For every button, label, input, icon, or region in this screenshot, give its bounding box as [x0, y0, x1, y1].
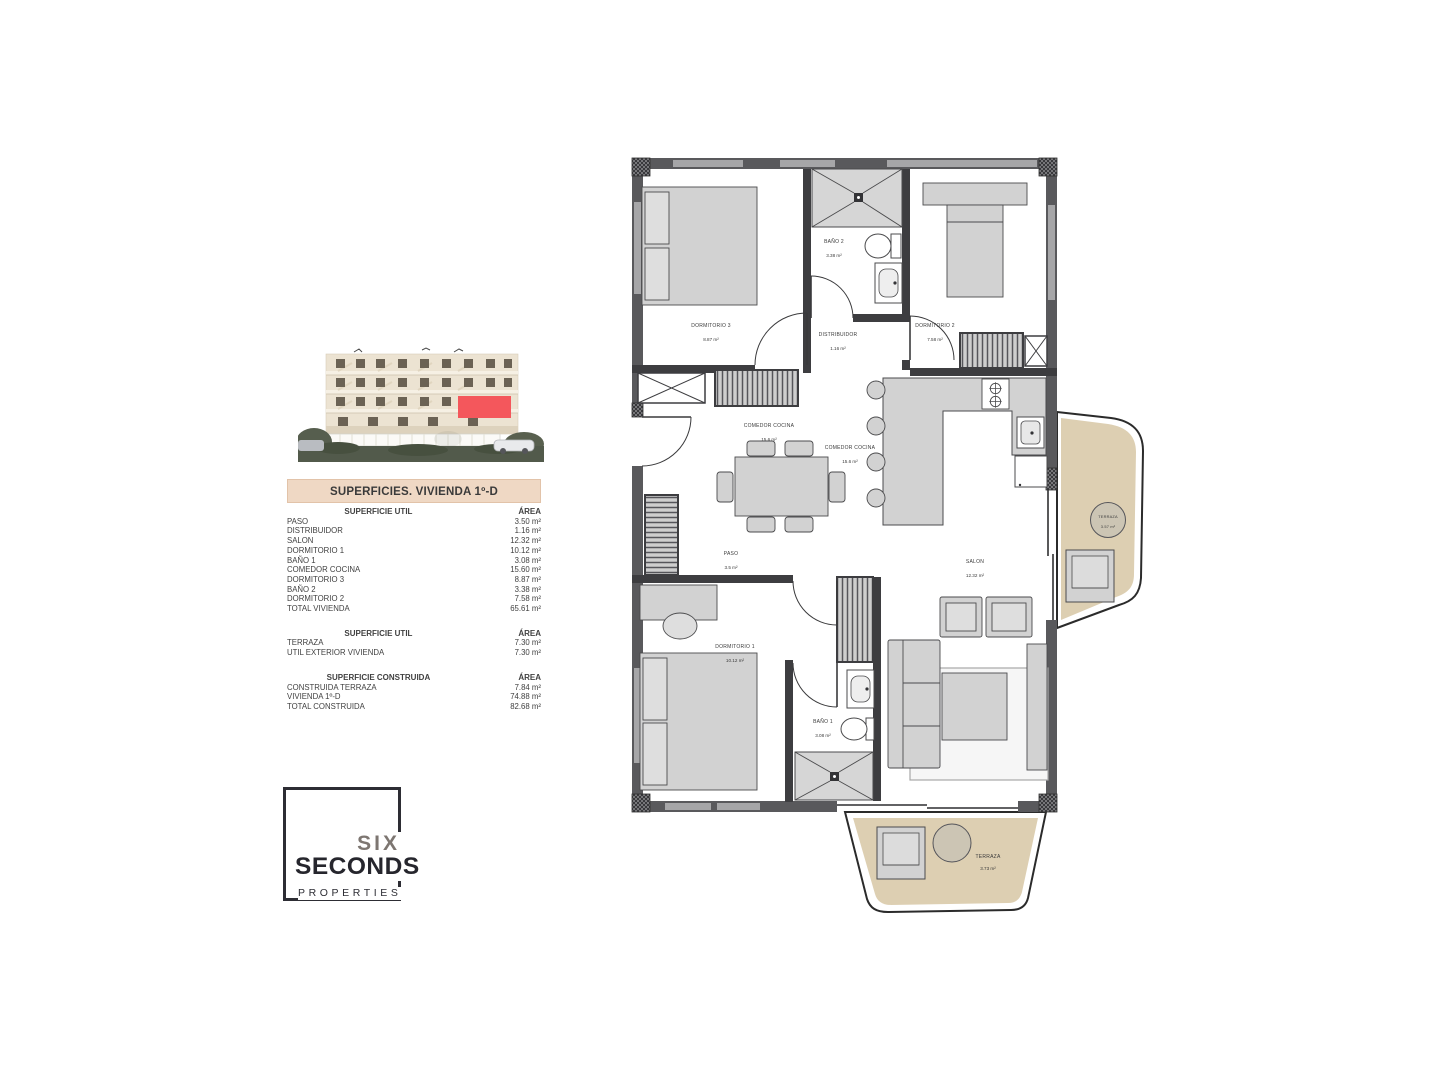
row-label: PASO — [287, 517, 308, 527]
room-area: 1.16 m² — [830, 346, 846, 351]
six-seconds-logo: SIX SECONDS PROPERTIES — [283, 787, 401, 901]
room-area: 10.12 m² — [726, 658, 745, 663]
surfaces-panel: SUPERFICIES. VIVIENDA 1º-D SUPERFICIE UT… — [287, 479, 541, 712]
table-row: SALON12.32 m² — [287, 536, 541, 546]
row-area: 65.61 m² — [510, 604, 541, 614]
dining-chair — [717, 472, 733, 502]
toilet-bowl — [865, 234, 891, 258]
room-label: PASO — [724, 551, 739, 557]
logo-properties: PROPERTIES — [298, 887, 402, 900]
bed-dormitorio-2 — [923, 183, 1027, 297]
table-row: BAÑO 23.38 m² — [287, 585, 541, 595]
row-label: COMEDOR COCINA — [287, 565, 360, 575]
building-illustration — [298, 346, 544, 470]
section-header-area: ÁREA — [470, 629, 541, 639]
room-label: TERRAZA — [975, 854, 1001, 860]
table-row: CONSTRUIDA TERRAZA7.84 m² — [287, 683, 541, 693]
table-row: PASO3.50 m² — [287, 517, 541, 527]
room-label: DORMITORIO 1 — [715, 644, 755, 650]
surfaces-title: SUPERFICIES. VIVIENDA 1º-D — [287, 479, 541, 503]
kitchen-cabinet — [1015, 456, 1047, 487]
bed-dormitorio-3 — [642, 187, 757, 305]
highlighted-unit — [458, 396, 511, 418]
room-area: 3.08 m² — [815, 733, 831, 738]
logo-six: SIX — [355, 832, 402, 855]
section-header-label: SUPERFICIE UTIL — [287, 629, 470, 639]
section-header: SUPERFICIE UTIL ÁREA — [287, 507, 541, 517]
room-area: 3.57 m² — [1101, 524, 1116, 529]
table-row: VIVIENDA 1º-D74.88 m² — [287, 692, 541, 702]
row-area: 15.60 m² — [510, 565, 541, 575]
surfaces-section-terraza: SUPERFICIE UTIL ÁREA TERRAZA7.30 m² UTIL… — [287, 629, 541, 658]
row-area: 7.58 m² — [515, 594, 541, 604]
room-area: 7.58 m² — [927, 337, 943, 342]
dining-chair — [785, 517, 813, 532]
toilet-bowl — [841, 718, 867, 740]
row-area: 10.12 m² — [510, 546, 541, 556]
room-label: DISTRIBUIDOR — [819, 332, 858, 338]
room-label: COMEDOR COCINA — [825, 445, 876, 451]
row-label: TOTAL VIVIENDA — [287, 604, 350, 614]
row-label: DISTRIBUIDOR — [287, 526, 343, 536]
row-label: TERRAZA — [287, 638, 323, 648]
room-area: 3.5 m² — [724, 565, 737, 570]
surfaces-table: SUPERFICIE UTIL ÁREA PASO3.50 m² DISTRIB… — [287, 507, 541, 712]
page: { "page": { "background": "#ffffff" }, "… — [0, 0, 1440, 1080]
terrace-table — [1091, 503, 1126, 538]
table-row: DORMITORIO 110.12 m² — [287, 546, 541, 556]
table-row: TERRAZA7.30 m² — [287, 638, 541, 648]
room-label: SALON — [966, 559, 984, 565]
section-header-label: SUPERFICIE UTIL — [287, 507, 470, 517]
dining-chair — [829, 472, 845, 502]
row-area: 3.08 m² — [515, 556, 541, 566]
surfaces-section-construida: SUPERFICIE CONSTRUIDA ÁREA CONSTRUIDA TE… — [287, 673, 541, 712]
table-row: BAÑO 13.08 m² — [287, 556, 541, 566]
room-label: DORMITORIO 2 — [915, 323, 955, 329]
room-area: 15.6 m² — [761, 437, 777, 442]
room-label: COMEDOR COCINA — [744, 423, 795, 429]
section-header: SUPERFICIE UTIL ÁREA — [287, 629, 541, 639]
row-area: 8.87 m² — [515, 575, 541, 585]
table-row: UTIL EXTERIOR VIVIENDA7.30 m² — [287, 648, 541, 658]
row-area: 7.30 m² — [515, 638, 541, 648]
sofa — [888, 640, 940, 768]
kitchen — [867, 378, 1047, 525]
terrace-table — [933, 824, 971, 862]
tv-bench — [1027, 644, 1047, 770]
row-label: DORMITORIO 1 — [287, 546, 344, 556]
row-label: SALON — [287, 536, 313, 546]
armchair — [940, 597, 1032, 637]
room-label: TERRAZA — [1098, 514, 1118, 519]
terrace-right — [1057, 412, 1143, 628]
room-label: BAÑO 1 — [813, 718, 833, 725]
row-label: VIVIENDA 1º-D — [287, 692, 341, 702]
row-area: 12.32 m² — [510, 536, 541, 546]
room-label: BAÑO 2 — [824, 238, 844, 245]
dining-table — [735, 457, 828, 516]
salon-furniture — [888, 597, 1048, 780]
coffee-table — [942, 673, 1007, 740]
bed-dormitorio-1 — [640, 653, 757, 790]
bar-stool — [867, 381, 885, 507]
row-label: CONSTRUIDA TERRAZA — [287, 683, 377, 693]
bathroom-1-fixtures — [795, 670, 874, 800]
row-area: 74.88 m² — [510, 692, 541, 702]
table-row: TOTAL VIVIENDA65.61 m² — [287, 604, 541, 614]
row-area: 3.50 m² — [515, 517, 541, 527]
room-area: 15.6 m² — [842, 459, 858, 464]
table-row: TOTAL CONSTRUIDA82.68 m² — [287, 702, 541, 712]
row-label: DORMITORIO 3 — [287, 575, 344, 585]
logo-seconds: SECONDS — [295, 854, 423, 881]
surfaces-section-util: SUPERFICIE UTIL ÁREA PASO3.50 m² DISTRIB… — [287, 507, 541, 614]
terrace-bottom — [845, 812, 1046, 912]
section-header-area: ÁREA — [470, 673, 541, 683]
room-area: 12.32 m² — [966, 573, 985, 578]
table-row: DORMITORIO 38.87 m² — [287, 575, 541, 585]
row-label: TOTAL CONSTRUIDA — [287, 702, 365, 712]
row-area: 3.38 m² — [515, 585, 541, 595]
room-label: DORMITORIO 3 — [691, 323, 731, 329]
section-header-label: SUPERFICIE CONSTRUIDA — [287, 673, 470, 683]
floor-plan-drawing: DORMITORIO 3 8.87 m² BAÑO 2 3.38 m² DIST… — [625, 150, 1155, 920]
building-render — [298, 346, 544, 470]
row-area: 1.16 m² — [515, 526, 541, 536]
row-area: 7.30 m² — [515, 648, 541, 658]
row-label: DORMITORIO 2 — [287, 594, 344, 604]
row-label: UTIL EXTERIOR VIVIENDA — [287, 648, 384, 658]
row-area: 7.84 m² — [515, 683, 541, 693]
section-header: SUPERFICIE CONSTRUIDA ÁREA — [287, 673, 541, 683]
bathroom-2-fixtures — [812, 169, 902, 303]
dining-chair — [747, 517, 775, 532]
section-header-area: ÁREA — [470, 507, 541, 517]
floor-plan: DORMITORIO 3 8.87 m² BAÑO 2 3.38 m² DIST… — [625, 150, 1155, 920]
table-row: COMEDOR COCINA15.60 m² — [287, 565, 541, 575]
table-row: DORMITORIO 27.58 m² — [287, 594, 541, 604]
table-row: DISTRIBUIDOR1.16 m² — [287, 526, 541, 536]
dining-chair — [785, 441, 813, 456]
toilet-tank — [891, 234, 901, 258]
row-label: BAÑO 2 — [287, 585, 316, 595]
room-area: 3.73 m² — [980, 866, 996, 871]
dining-set — [717, 441, 845, 532]
row-area: 82.68 m² — [510, 702, 541, 712]
kitchen-counter — [883, 378, 1046, 525]
row-label: BAÑO 1 — [287, 556, 316, 566]
room-area: 3.38 m² — [826, 253, 842, 258]
desk — [640, 585, 717, 639]
room-area: 8.87 m² — [703, 337, 719, 342]
dining-chair — [747, 441, 775, 456]
